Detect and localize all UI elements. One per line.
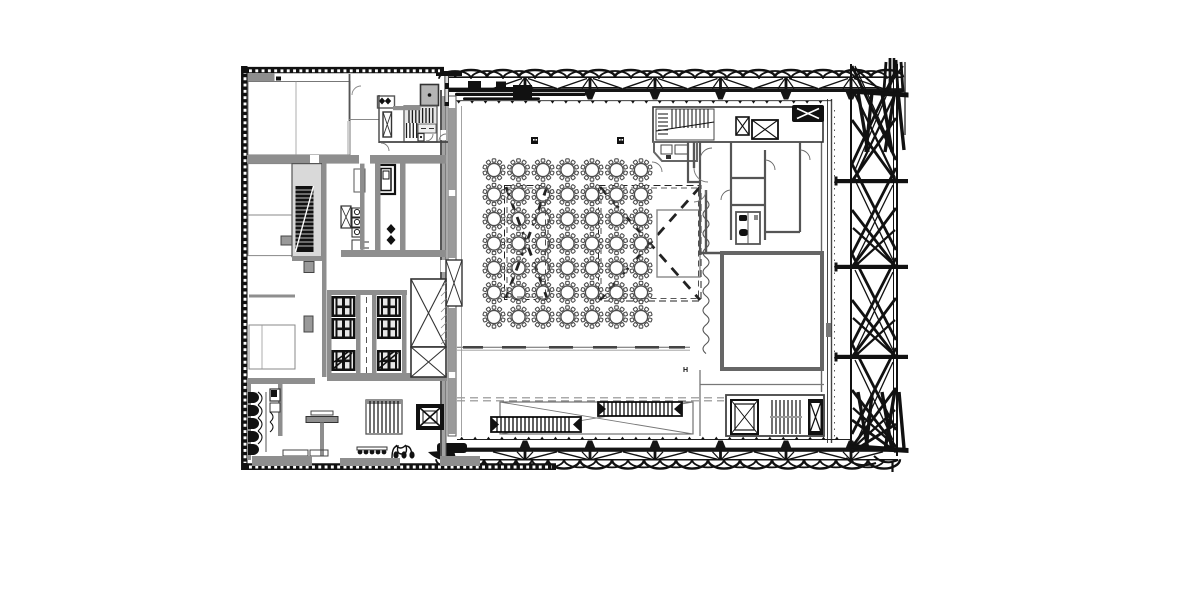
svg-text:H: H [683, 367, 688, 374]
